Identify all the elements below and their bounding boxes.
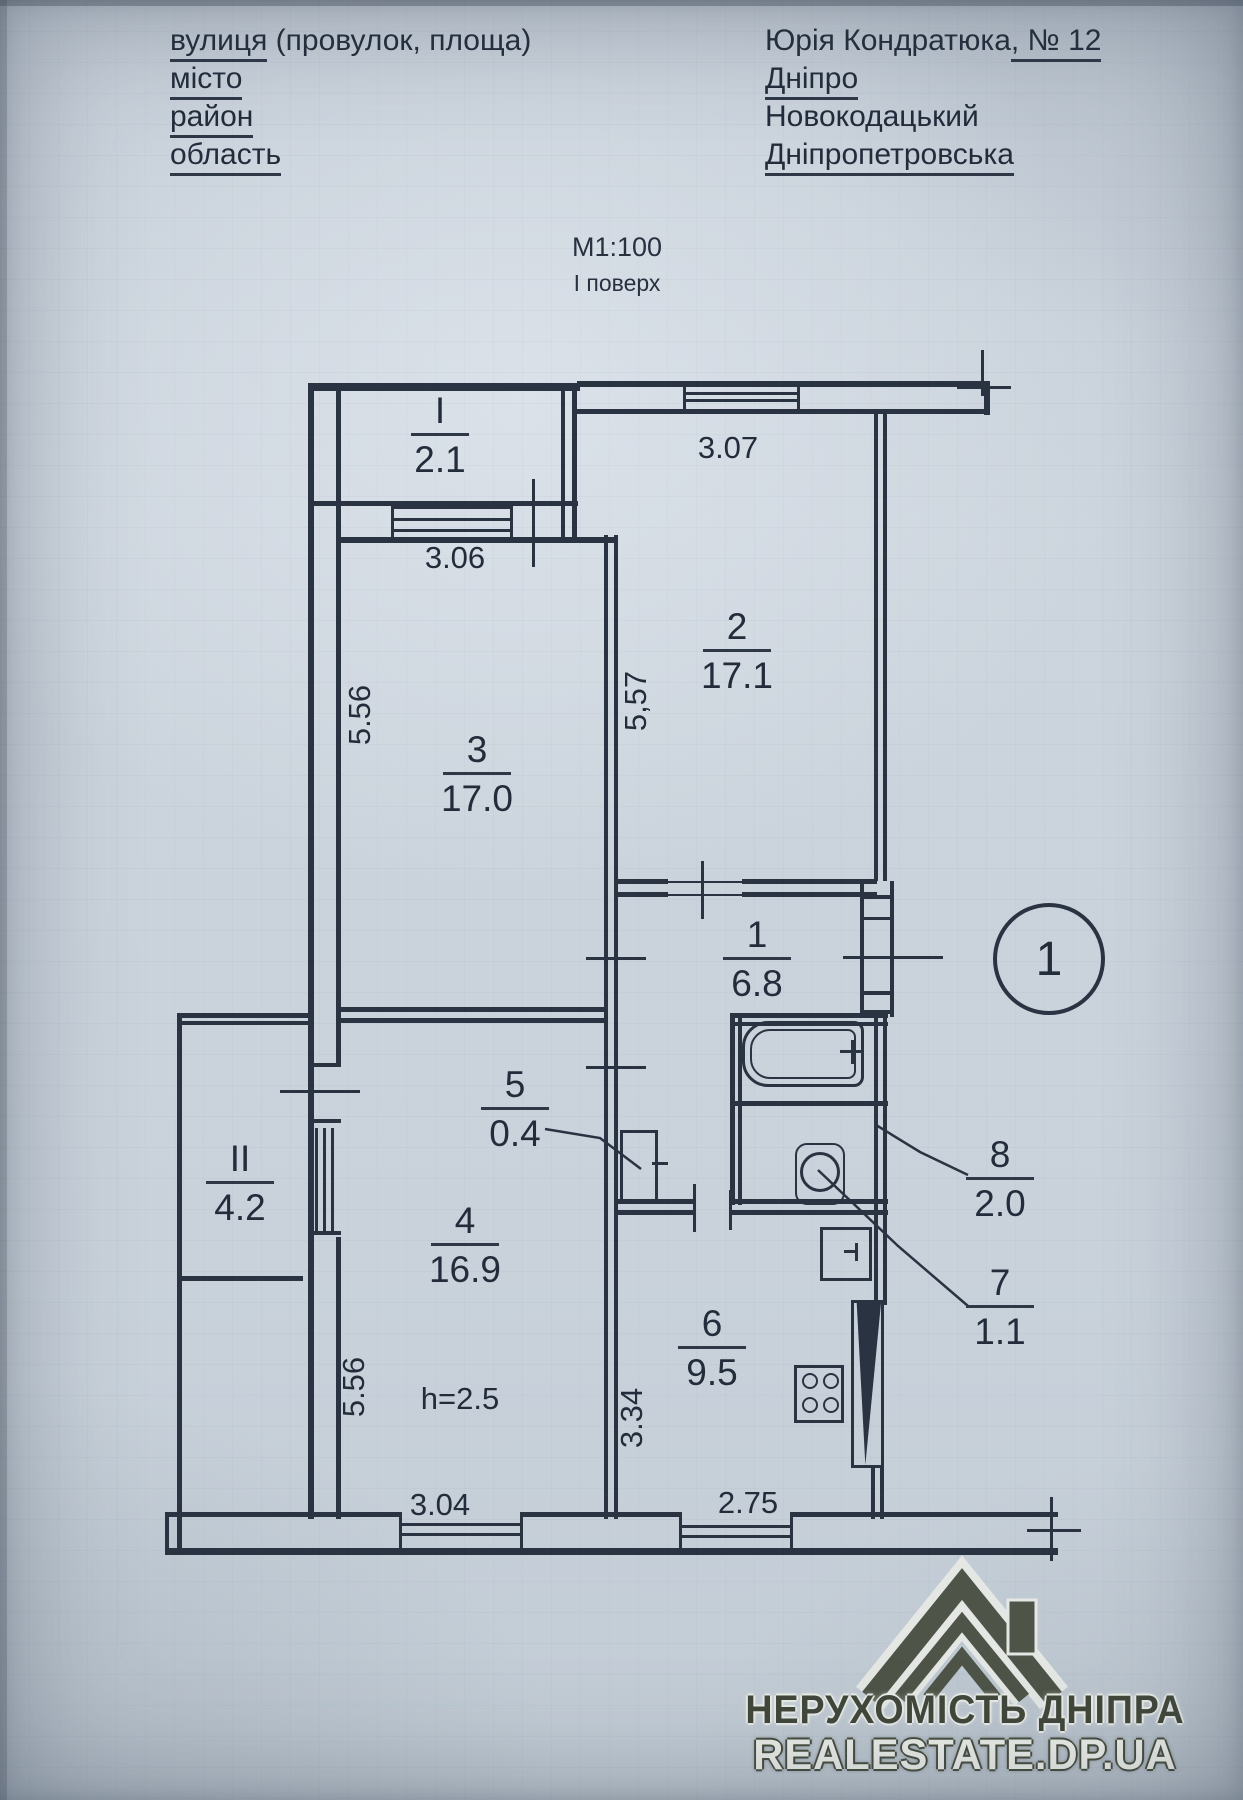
floor-plan-scan-page: вулиця (провулок, площа) Юрія Кондратюка…: [0, 0, 1243, 1800]
wall-segment: [860, 881, 864, 1017]
wall-segment: [315, 1128, 318, 1233]
wall-segment: [860, 895, 894, 899]
wall-segment: [402, 1523, 522, 1526]
wall-segment: [797, 386, 800, 414]
scan-edge-left: [0, 0, 7, 1800]
wall-segment: [693, 1184, 696, 1232]
wall-segment: [341, 1007, 605, 1012]
wall-segment: [686, 392, 797, 395]
value-street: Юрія Кондратюка, № 12: [765, 24, 1101, 58]
field-street: вулиця (провулок, площа): [170, 24, 531, 58]
wall-segment: [618, 892, 668, 897]
wall-segment: [686, 399, 797, 402]
wall-segment: [729, 1190, 732, 1230]
wall-segment: [308, 1231, 341, 1235]
wall-segment: [402, 1533, 522, 1536]
stove-burner: [823, 1397, 839, 1413]
wall-segment: [572, 389, 577, 541]
wall-segment: [331, 1128, 334, 1233]
wall-segment: [177, 1013, 182, 1555]
wall-segment: [668, 894, 742, 896]
wall-segment: [742, 879, 877, 884]
closet-outline: [620, 1130, 658, 1202]
wall-segment: [523, 1512, 682, 1517]
drawing-scale: М1:100: [517, 232, 717, 263]
dim-kitchen-width: 2.75: [688, 1485, 808, 1521]
wall-segment: [577, 409, 990, 414]
wall-segment: [701, 861, 704, 919]
bathtub-inner: [750, 1029, 856, 1079]
wall-segment: [682, 1535, 792, 1538]
wall-segment: [883, 1017, 887, 1305]
wall-segment: [874, 413, 878, 881]
wall-segment: [165, 1512, 402, 1517]
watermark-agency-name: НЕРУХОМІСТЬ ДНІПРА: [674, 1688, 1243, 1733]
wall-segment: [793, 1512, 1058, 1517]
wall-segment: [308, 1119, 341, 1123]
room-label-3: 317.0: [417, 731, 537, 817]
wall-segment: [561, 389, 565, 541]
wall-segment: [668, 881, 742, 883]
wall-segment: [177, 1013, 308, 1018]
wall-segment: [957, 386, 1011, 389]
wall-segment: [394, 529, 510, 532]
floor-label: І поверх: [517, 270, 717, 297]
wall-segment: [165, 1548, 1058, 1555]
section-marker-circle: 1: [993, 903, 1105, 1015]
wall-segment: [618, 879, 668, 884]
value-region: Дніпропетровська: [765, 138, 1014, 172]
dim-room4-depth: 5.56: [336, 1332, 372, 1442]
wall-segment: [341, 1018, 605, 1023]
ceiling-height-note: h=2.5: [380, 1381, 540, 1417]
wall-segment: [730, 1013, 735, 1205]
kitchen-sink-icon: [820, 1227, 872, 1281]
wall-segment: [730, 1101, 888, 1106]
dim-kitchen-depth: 3.34: [614, 1363, 650, 1473]
wall-segment: [394, 506, 510, 509]
dim-room3-depth: 5.56: [342, 660, 378, 770]
room-label-6: 69.5: [652, 1305, 772, 1391]
room-label-balcony-II: ІІ4.2: [190, 1140, 290, 1226]
value-district: Новокодацький: [765, 100, 979, 134]
wall-segment: [308, 385, 314, 1519]
toilet-bowl: [800, 1152, 840, 1192]
wall-segment: [679, 1512, 682, 1554]
wall-segment: [308, 1063, 341, 1067]
wall-segment: [165, 1512, 169, 1555]
wall-segment: [182, 1276, 303, 1281]
dim-room2-depth: 5,57: [618, 646, 654, 756]
wall-segment: [391, 505, 394, 540]
wall-segment: [860, 991, 894, 995]
wall-segment: [874, 1017, 878, 1305]
wall-segment: [890, 881, 894, 1017]
room-label-8: 82.0: [940, 1136, 1060, 1222]
dim-room4-width: 3.04: [380, 1487, 500, 1523]
wall-segment: [860, 917, 894, 920]
room-label-5: 50.4: [460, 1066, 570, 1152]
wall-segment: [730, 1013, 888, 1018]
wall-segment: [323, 1128, 326, 1233]
wall-segment: [742, 892, 877, 897]
wall-segment: [732, 1210, 888, 1215]
room-label-2: 217.1: [677, 608, 797, 694]
dim-room3-width: 3.06: [395, 540, 515, 576]
wall-segment: [586, 957, 646, 960]
field-city: місто: [170, 62, 242, 96]
scan-edge-top: [0, 0, 1243, 6]
watermark-site-url: REALESTATE.DP.UA: [664, 1731, 1243, 1780]
wall-segment: [586, 1066, 646, 1069]
room-label-1: 16.8: [697, 916, 817, 1002]
wall-segment: [532, 479, 535, 567]
watermark-house-icon: [870, 1584, 1054, 1698]
stove-burner: [823, 1373, 839, 1389]
stove-burner: [802, 1373, 818, 1389]
wall-segment: [1027, 1529, 1081, 1532]
wall-segment: [883, 413, 887, 881]
stove-burner: [802, 1397, 818, 1413]
room-label-4: 416.9: [403, 1202, 527, 1288]
field-region: область: [170, 138, 281, 172]
wall-segment: [604, 535, 608, 1519]
wall-segment: [510, 505, 513, 540]
wall-segment: [577, 381, 990, 387]
wall-segment: [981, 350, 984, 396]
wall-segment: [682, 1525, 792, 1528]
wall-segment: [280, 1090, 360, 1093]
wall-segment: [618, 1210, 695, 1215]
wall-segment: [177, 1021, 308, 1025]
stove-icon: [794, 1365, 844, 1423]
dim-room2-width: 3.07: [668, 430, 788, 466]
room-label-7: 71.1: [940, 1264, 1060, 1350]
wall-segment: [843, 956, 943, 959]
value-city: Дніпро: [765, 62, 858, 96]
wall-segment: [336, 385, 341, 1067]
wall-segment: [394, 518, 510, 521]
field-district: район: [170, 100, 253, 134]
room-label-balcony-I: І2.1: [390, 392, 490, 478]
